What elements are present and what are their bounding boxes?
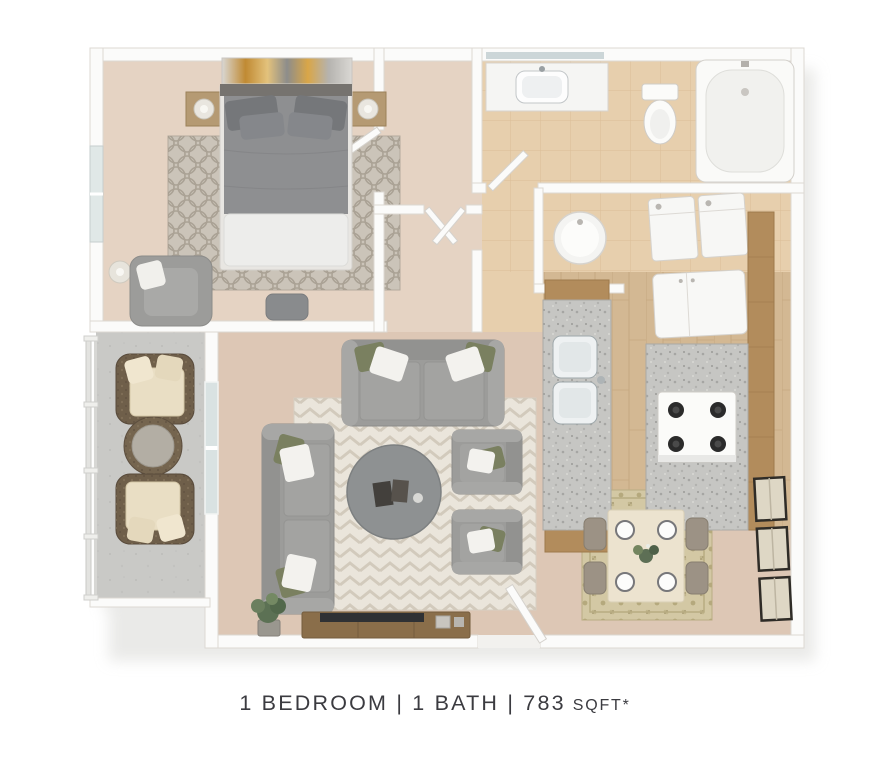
- bathtub: [696, 60, 794, 182]
- coffee-table: [347, 445, 441, 539]
- wall-top: [90, 48, 804, 61]
- nightstand-left: [186, 92, 222, 126]
- pillow: [287, 112, 333, 140]
- decor-box: [436, 616, 450, 628]
- dining-wall-art: [754, 477, 791, 620]
- dryer: [698, 193, 748, 258]
- tub-faucet-icon: [741, 61, 749, 67]
- queen-bed: [220, 84, 352, 270]
- wicker-chair-1: [116, 354, 194, 424]
- bedroom-window: [90, 146, 103, 242]
- wall-bath-bottom-a: [472, 183, 486, 193]
- wicker-chair-2: [116, 474, 194, 544]
- armchair-1: [452, 430, 522, 494]
- wall-closet-bottom-b: [466, 205, 482, 214]
- patio-railing: [84, 336, 98, 600]
- wall-bottom-right: [540, 635, 804, 648]
- mirror: [486, 52, 604, 59]
- faucet-icon: [597, 376, 605, 384]
- bedroom-armchair: [130, 256, 212, 326]
- vanity: [486, 63, 608, 111]
- water-heater: [554, 212, 606, 264]
- wall-closet-bottom-a: [374, 205, 424, 214]
- stove: [658, 392, 736, 462]
- entry-threshold: [478, 635, 540, 648]
- ottoman: [266, 294, 308, 320]
- wall-patio-end: [90, 598, 210, 607]
- pillow: [239, 112, 285, 140]
- toilet: [642, 84, 678, 144]
- bedroom-wall-art: [222, 58, 352, 86]
- pillow: [466, 448, 495, 474]
- caption: 1 BEDROOM | 1 BATH | 783SQFT*: [0, 691, 870, 716]
- pillow: [466, 528, 495, 554]
- caption-main: 1 BEDROOM | 1 BATH | 783: [239, 691, 565, 715]
- headboard: [220, 84, 352, 96]
- wall-utility-left: [534, 188, 543, 293]
- wall-bath-bottom-b: [538, 183, 804, 193]
- faucet-icon: [539, 66, 545, 72]
- floor-plan-page: 1 BEDROOM | 1 BATH | 783SQFT*: [0, 0, 870, 768]
- drain-icon: [741, 88, 749, 96]
- tv-console: [302, 612, 470, 638]
- sheet: [224, 214, 348, 266]
- floor-plan-image: [0, 0, 870, 768]
- wall-hall-right-b: [472, 250, 482, 332]
- tv: [320, 613, 424, 622]
- caption-unit: SQFT*: [573, 697, 631, 714]
- refrigerator: [652, 270, 747, 339]
- wicker-table: [124, 417, 182, 475]
- loveseat: [342, 340, 504, 426]
- washer: [648, 196, 698, 261]
- nightstand-right: [350, 92, 386, 126]
- dining-table: [608, 510, 684, 602]
- sliding-glass-door: [205, 382, 218, 514]
- decor-box: [454, 617, 464, 627]
- sofa: [262, 424, 334, 614]
- peninsula-counter: [543, 280, 611, 552]
- wall-hall-right-a: [472, 48, 482, 188]
- range-counter: [646, 344, 748, 530]
- armchair-2: [452, 510, 522, 574]
